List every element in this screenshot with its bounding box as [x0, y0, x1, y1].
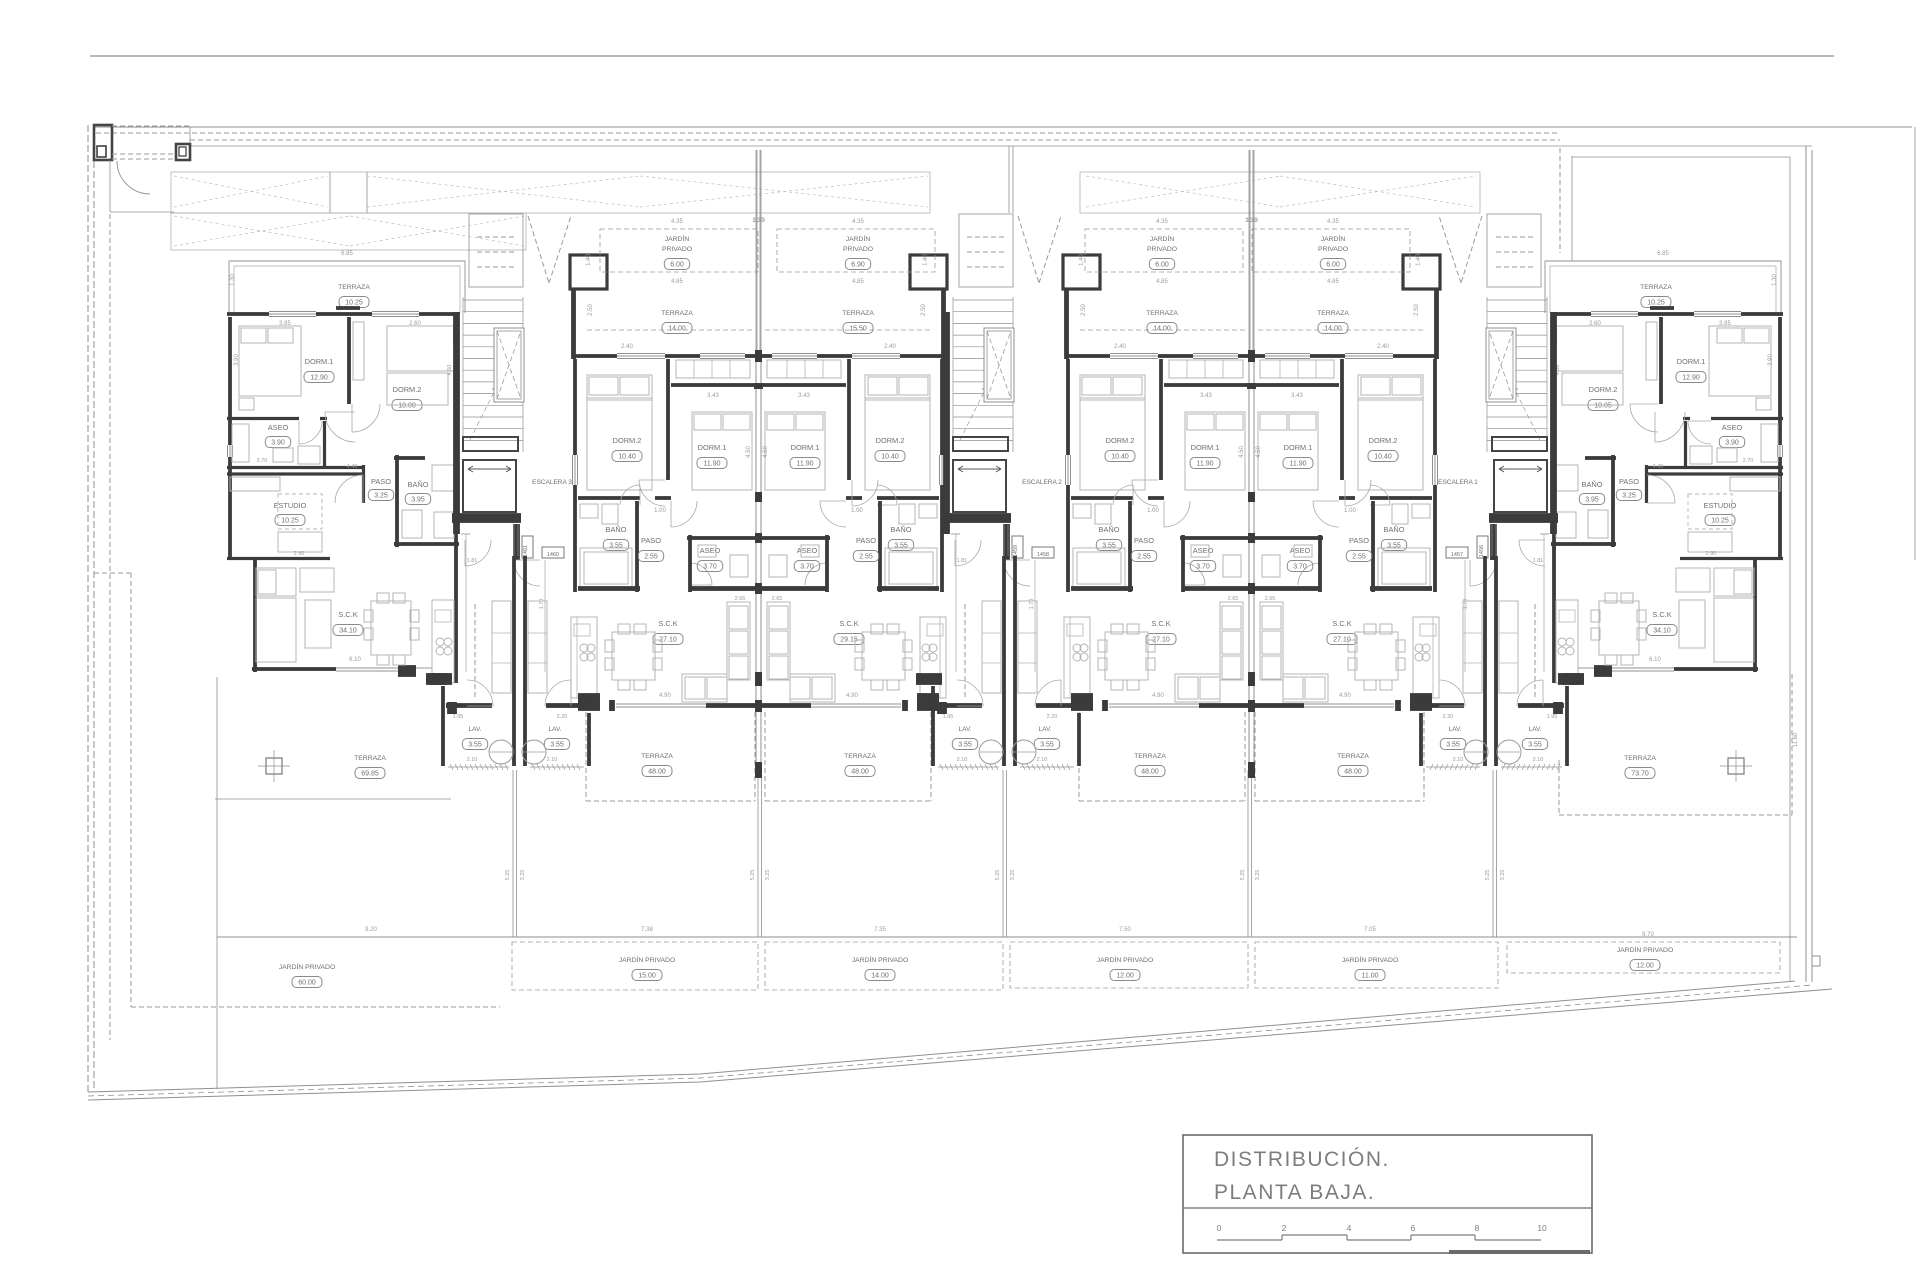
svg-text:LAV.: LAV. — [548, 726, 561, 733]
svg-text:JARDÍN PRIVADO: JARDÍN PRIVADO — [1342, 955, 1399, 964]
svg-text:PASO: PASO — [1619, 477, 1639, 486]
svg-text:7.05: 7.05 — [1364, 927, 1376, 933]
svg-text:4.85: 4.85 — [1156, 279, 1168, 285]
svg-text:ASEO: ASEO — [1290, 546, 1311, 555]
svg-text:5.25: 5.25 — [1485, 870, 1491, 881]
svg-text:14.00: 14.00 — [871, 973, 889, 980]
svg-text:3.25: 3.25 — [1255, 870, 1261, 881]
svg-text:ESCALERA 2: ESCALERA 2 — [1022, 479, 1062, 486]
svg-text:3.25: 3.25 — [765, 870, 771, 881]
svg-text:2.70: 2.70 — [1743, 458, 1754, 464]
svg-text:3.55: 3.55 — [1446, 742, 1460, 749]
svg-text:1.30: 1.30 — [1772, 274, 1778, 286]
svg-text:DORM.1: DORM.1 — [791, 443, 820, 452]
svg-text:TERRAZA: TERRAZA — [1146, 310, 1178, 317]
svg-text:34.10: 34.10 — [1653, 628, 1671, 635]
svg-text:4.90: 4.90 — [846, 693, 858, 699]
svg-text:10.25: 10.25 — [281, 518, 299, 525]
svg-text:DORM.1: DORM.1 — [698, 443, 727, 452]
svg-text:4.50: 4.50 — [1256, 446, 1262, 458]
svg-text:7.50: 7.50 — [1119, 927, 1131, 933]
svg-text:14.00: 14.00 — [668, 326, 686, 333]
svg-text:JARDÍN PRIVADO: JARDÍN PRIVADO — [619, 955, 676, 964]
svg-text:10.40: 10.40 — [1111, 454, 1129, 461]
svg-text:DORM.1: DORM.1 — [305, 357, 334, 366]
svg-text:2.65: 2.65 — [1265, 596, 1276, 602]
svg-text:1.81: 1.81 — [1533, 558, 1544, 564]
svg-text:11.90: 11.90 — [704, 461, 721, 468]
svg-text:3.25: 3.25 — [520, 870, 526, 881]
svg-text:DORM.1: DORM.1 — [1284, 443, 1313, 452]
svg-text:4.85: 4.85 — [852, 279, 864, 285]
svg-text:DORM.2: DORM.2 — [1106, 436, 1135, 445]
svg-text:3.55: 3.55 — [1102, 543, 1116, 550]
svg-text:1.40: 1.40 — [923, 254, 929, 266]
svg-text:2.20: 2.20 — [557, 714, 568, 720]
svg-text:ASEO: ASEO — [1193, 546, 1214, 555]
svg-text:0: 0 — [1217, 1223, 1222, 1233]
svg-text:1.81: 1.81 — [957, 558, 968, 564]
svg-text:3.43: 3.43 — [1200, 393, 1212, 399]
svg-text:3.25: 3.25 — [1010, 870, 1016, 881]
svg-text:4.50: 4.50 — [746, 446, 752, 458]
svg-text:1.40: 1.40 — [1079, 254, 1085, 266]
svg-text:1.00: 1.00 — [1344, 508, 1356, 514]
svg-text:1.40: 1.40 — [586, 254, 592, 266]
svg-text:4.50: 4.50 — [447, 365, 453, 376]
svg-text:4.50: 4.50 — [763, 446, 769, 458]
svg-text:3.70: 3.70 — [1196, 564, 1210, 571]
svg-text:73.70: 73.70 — [1631, 771, 1649, 778]
svg-text:TERRAZA: TERRAZA — [1337, 753, 1369, 760]
svg-text:PASO: PASO — [371, 477, 391, 486]
svg-text:BAÑO: BAÑO — [1384, 525, 1405, 534]
svg-text:TERRAZA: TERRAZA — [842, 310, 874, 317]
svg-text:S.C.K: S.C.K — [1151, 619, 1170, 628]
svg-text:3.90: 3.90 — [1725, 440, 1739, 447]
svg-text:48.00: 48.00 — [1141, 769, 1159, 776]
svg-text:2.50: 2.50 — [588, 304, 594, 316]
svg-text:2.10: 2.10 — [957, 757, 968, 763]
svg-text:TERRAZA: TERRAZA — [661, 310, 693, 317]
svg-text:2.20: 2.20 — [1443, 714, 1454, 720]
svg-text:48.00: 48.00 — [1344, 769, 1362, 776]
svg-text:3.25: 3.25 — [1500, 870, 1506, 881]
svg-text:1458: 1458 — [1037, 552, 1049, 558]
svg-text:S.C.K: S.C.K — [1332, 619, 1351, 628]
svg-text:2.10: 2.10 — [1533, 757, 1544, 763]
svg-text:3.55: 3.55 — [1387, 543, 1401, 550]
svg-text:3.25: 3.25 — [374, 493, 388, 500]
svg-text:TERRAZA: TERRAZA — [1640, 284, 1672, 291]
svg-text:7.35: 7.35 — [874, 927, 886, 933]
svg-text:5.25: 5.25 — [505, 870, 511, 881]
svg-text:10.25: 10.25 — [345, 300, 363, 307]
svg-text:15.50: 15.50 — [849, 326, 867, 333]
svg-text:11.90: 11.90 — [1197, 461, 1214, 468]
svg-text:1.70: 1.70 — [1029, 599, 1035, 610]
svg-text:ASEO: ASEO — [1722, 423, 1743, 432]
svg-text:ESCALERA 1: ESCALERA 1 — [1438, 479, 1478, 486]
svg-text:3.95: 3.95 — [1585, 497, 1599, 504]
svg-text:ASEO: ASEO — [700, 546, 721, 555]
svg-text:LAV.: LAV. — [1448, 726, 1461, 733]
svg-text:S.C.K: S.C.K — [1652, 610, 1671, 619]
svg-text:1.81: 1.81 — [467, 558, 478, 564]
svg-text:BAÑO: BAÑO — [1582, 480, 1603, 489]
svg-text:1.95: 1.95 — [1547, 714, 1558, 720]
svg-text:LAV.: LAV. — [1038, 726, 1051, 733]
svg-text:6.85: 6.85 — [1657, 251, 1669, 257]
svg-text:4: 4 — [1347, 1223, 1352, 1233]
svg-text:DORM.2: DORM.2 — [1589, 385, 1618, 394]
svg-text:12.00: 12.00 — [1116, 973, 1134, 980]
svg-text:DORM.1: DORM.1 — [1677, 357, 1706, 366]
svg-text:2.65: 2.65 — [735, 596, 746, 602]
svg-text:S.C.K: S.C.K — [839, 619, 858, 628]
svg-text:10.40: 10.40 — [881, 454, 899, 461]
svg-text:TERRAZA: TERRAZA — [1624, 755, 1656, 762]
svg-text:3.90: 3.90 — [271, 440, 285, 447]
svg-text:9.20: 9.20 — [365, 927, 377, 933]
svg-text:JARDÍN PRIVADO: JARDÍN PRIVADO — [1617, 945, 1674, 954]
svg-text:ASEO: ASEO — [268, 423, 289, 432]
svg-text:2.50: 2.50 — [1414, 304, 1420, 316]
svg-text:1.00: 1.00 — [1147, 508, 1159, 514]
svg-text:9.70: 9.70 — [1642, 932, 1654, 938]
svg-text:JARDÍN PRIVADO: JARDÍN PRIVADO — [279, 962, 336, 971]
svg-text:5.25: 5.25 — [1240, 870, 1246, 881]
svg-text:3.43: 3.43 — [707, 393, 719, 399]
svg-text:JARDÍN PRIVADO: JARDÍN PRIVADO — [1097, 955, 1154, 964]
svg-text:2.55: 2.55 — [1137, 554, 1151, 561]
svg-text:BAÑO: BAÑO — [408, 480, 429, 489]
svg-text:PRIVADO: PRIVADO — [1318, 246, 1348, 253]
svg-text:2.65: 2.65 — [772, 596, 783, 602]
svg-text:S.C.K: S.C.K — [658, 619, 677, 628]
svg-text:10.00: 10.00 — [398, 403, 416, 410]
svg-text:4.35: 4.35 — [671, 219, 683, 225]
svg-text:3.55: 3.55 — [468, 742, 482, 749]
svg-text:JARDÍN PRIVADO: JARDÍN PRIVADO — [852, 955, 909, 964]
svg-text:2.90: 2.90 — [1706, 551, 1717, 557]
svg-text:6.10: 6.10 — [349, 657, 361, 663]
svg-text:6.10: 6.10 — [1649, 657, 1661, 663]
svg-text:11.90: 11.90 — [797, 461, 814, 468]
svg-text:12.90: 12.90 — [310, 375, 328, 382]
svg-text:3.55: 3.55 — [550, 742, 564, 749]
svg-text:1457: 1457 — [1451, 552, 1463, 558]
svg-text:TERRAZA: TERRAZA — [1134, 753, 1166, 760]
svg-text:PASO: PASO — [641, 536, 661, 545]
svg-text:6.85: 6.85 — [341, 251, 353, 257]
svg-text:PRIVADO: PRIVADO — [1147, 246, 1177, 253]
svg-text:11.90: 11.90 — [1290, 461, 1307, 468]
svg-text:DORM.2: DORM.2 — [1369, 436, 1398, 445]
svg-text:3.43: 3.43 — [798, 393, 810, 399]
svg-text:ASEO: ASEO — [797, 546, 818, 555]
svg-text:2.70: 2.70 — [257, 458, 268, 464]
svg-text:2.55: 2.55 — [644, 554, 658, 561]
svg-text:1.30: 1.30 — [1246, 218, 1258, 224]
svg-text:1.95: 1.95 — [943, 714, 954, 720]
svg-text:BAÑO: BAÑO — [1099, 525, 1120, 534]
svg-text:2.10: 2.10 — [1453, 757, 1464, 763]
svg-text:2.40: 2.40 — [884, 344, 896, 350]
svg-text:1.95: 1.95 — [453, 714, 464, 720]
svg-text:PASO: PASO — [856, 536, 876, 545]
svg-text:1456: 1456 — [1479, 545, 1485, 557]
svg-text:6: 6 — [1411, 1223, 1416, 1233]
svg-text:10: 10 — [1537, 1223, 1547, 1233]
svg-text:DORM.2: DORM.2 — [876, 436, 905, 445]
svg-text:ESCALERA 3: ESCALERA 3 — [532, 479, 572, 486]
svg-text:PRIVADO: PRIVADO — [843, 246, 873, 253]
svg-text:1460: 1460 — [547, 552, 559, 558]
svg-text:3.55: 3.55 — [1040, 742, 1054, 749]
svg-text:LAV.: LAV. — [1528, 726, 1541, 733]
svg-text:BAÑO: BAÑO — [891, 525, 912, 534]
svg-text:10.40: 10.40 — [618, 454, 636, 461]
svg-text:DORM.2: DORM.2 — [393, 385, 422, 394]
svg-text:DORM.2: DORM.2 — [613, 436, 642, 445]
svg-text:5.25: 5.25 — [750, 870, 756, 881]
svg-text:14.00: 14.00 — [1324, 326, 1342, 333]
svg-text:10.25: 10.25 — [1647, 300, 1665, 307]
svg-text:3.43: 3.43 — [1291, 393, 1303, 399]
svg-text:JARDÍN: JARDÍN — [1321, 234, 1346, 243]
svg-text:2.50: 2.50 — [1081, 304, 1087, 316]
svg-text:1.70: 1.70 — [1463, 599, 1469, 610]
svg-text:6.90: 6.90 — [851, 262, 865, 269]
svg-text:BAÑO: BAÑO — [606, 525, 627, 534]
svg-text:10.05: 10.05 — [1594, 403, 1612, 410]
svg-text:3.55: 3.55 — [1528, 742, 1542, 749]
svg-text:11.00: 11.00 — [1362, 973, 1379, 980]
svg-text:1461: 1461 — [523, 545, 529, 557]
svg-text:4.85: 4.85 — [671, 279, 683, 285]
svg-text:PLANTA BAJA.: PLANTA BAJA. — [1214, 1181, 1375, 1204]
svg-text:2.55: 2.55 — [1352, 554, 1366, 561]
svg-text:2.55: 2.55 — [859, 554, 873, 561]
svg-text:69.85: 69.85 — [361, 771, 379, 778]
svg-text:TERRAZA: TERRAZA — [1317, 310, 1349, 317]
svg-text:PRIVADO: PRIVADO — [662, 246, 692, 253]
svg-text:60.00: 60.00 — [298, 980, 316, 987]
svg-text:JARDÍN: JARDÍN — [665, 234, 690, 243]
svg-text:S.C.K: S.C.K — [338, 610, 357, 619]
svg-text:ESTUDIO: ESTUDIO — [274, 501, 307, 510]
svg-text:5.25: 5.25 — [995, 870, 1001, 881]
svg-text:2: 2 — [1282, 1223, 1287, 1233]
svg-text:1.00: 1.00 — [851, 508, 863, 514]
svg-text:LAV.: LAV. — [468, 726, 481, 733]
svg-text:2.40: 2.40 — [621, 344, 633, 350]
svg-text:2.10: 2.10 — [467, 757, 478, 763]
svg-text:12.90: 12.90 — [1682, 375, 1700, 382]
svg-text:TERRAZA: TERRAZA — [844, 753, 876, 760]
svg-text:DORM.1: DORM.1 — [1191, 443, 1220, 452]
svg-text:4.40: 4.40 — [1653, 464, 1664, 470]
svg-text:LAV.: LAV. — [958, 726, 971, 733]
svg-text:3.95: 3.95 — [411, 497, 425, 504]
svg-text:1459: 1459 — [1013, 545, 1019, 557]
svg-text:2.65: 2.65 — [1228, 596, 1239, 602]
svg-text:4.35: 4.35 — [1327, 219, 1339, 225]
svg-text:TERRAZA: TERRAZA — [338, 284, 370, 291]
svg-text:3.70: 3.70 — [1293, 564, 1307, 571]
svg-text:4.90: 4.90 — [1152, 693, 1164, 699]
svg-text:TERRAZA: TERRAZA — [641, 753, 673, 760]
svg-text:4.50: 4.50 — [1239, 446, 1245, 458]
svg-text:2.40: 2.40 — [1377, 344, 1389, 350]
svg-text:JARDÍN: JARDÍN — [1150, 234, 1175, 243]
svg-text:15.00: 15.00 — [638, 973, 656, 980]
svg-text:6.00: 6.00 — [670, 262, 684, 269]
svg-text:1.30: 1.30 — [230, 274, 236, 286]
svg-text:3.55: 3.55 — [958, 742, 972, 749]
svg-text:48.00: 48.00 — [851, 769, 869, 776]
svg-text:DISTRIBUCIÓN.: DISTRIBUCIÓN. — [1214, 1148, 1390, 1171]
svg-text:3.25: 3.25 — [1622, 493, 1636, 500]
svg-text:4.35: 4.35 — [852, 219, 864, 225]
svg-text:2.40: 2.40 — [1114, 344, 1126, 350]
svg-text:2.10: 2.10 — [547, 757, 558, 763]
svg-text:8: 8 — [1475, 1223, 1480, 1233]
svg-text:10.40: 10.40 — [1374, 454, 1392, 461]
svg-text:2.50: 2.50 — [921, 304, 927, 316]
svg-text:4.90: 4.90 — [659, 693, 671, 699]
svg-text:2.20: 2.20 — [1047, 714, 1058, 720]
svg-text:PASO: PASO — [1349, 536, 1369, 545]
svg-text:JARDÍN: JARDÍN — [846, 234, 871, 243]
svg-text:4.85: 4.85 — [1327, 279, 1339, 285]
svg-text:1.40: 1.40 — [1416, 254, 1422, 266]
svg-text:3.70: 3.70 — [703, 564, 717, 571]
svg-text:2.90: 2.90 — [294, 551, 305, 557]
svg-text:14.00: 14.00 — [1153, 326, 1171, 333]
svg-text:6.00: 6.00 — [1326, 262, 1340, 269]
svg-text:11.60: 11.60 — [1793, 732, 1799, 747]
svg-text:7.38: 7.38 — [641, 927, 653, 933]
svg-text:4.40: 4.40 — [347, 464, 358, 470]
svg-text:4.90: 4.90 — [1339, 693, 1351, 699]
svg-text:1.70: 1.70 — [539, 599, 545, 610]
svg-text:48.00: 48.00 — [648, 769, 666, 776]
svg-text:10.25: 10.25 — [1711, 518, 1729, 525]
svg-text:3.55: 3.55 — [609, 543, 623, 550]
svg-text:TERRAZA: TERRAZA — [354, 755, 386, 762]
svg-text:3.70: 3.70 — [800, 564, 814, 571]
svg-text:3.55: 3.55 — [894, 543, 908, 550]
svg-text:PASO: PASO — [1134, 536, 1154, 545]
svg-text:12.00: 12.00 — [1636, 963, 1654, 970]
svg-text:6.00: 6.00 — [1155, 262, 1169, 269]
svg-text:1.30: 1.30 — [753, 218, 765, 224]
svg-text:1.00: 1.00 — [654, 508, 666, 514]
svg-text:2.10: 2.10 — [1037, 757, 1048, 763]
svg-text:34.10: 34.10 — [339, 628, 357, 635]
svg-text:4.35: 4.35 — [1156, 219, 1168, 225]
